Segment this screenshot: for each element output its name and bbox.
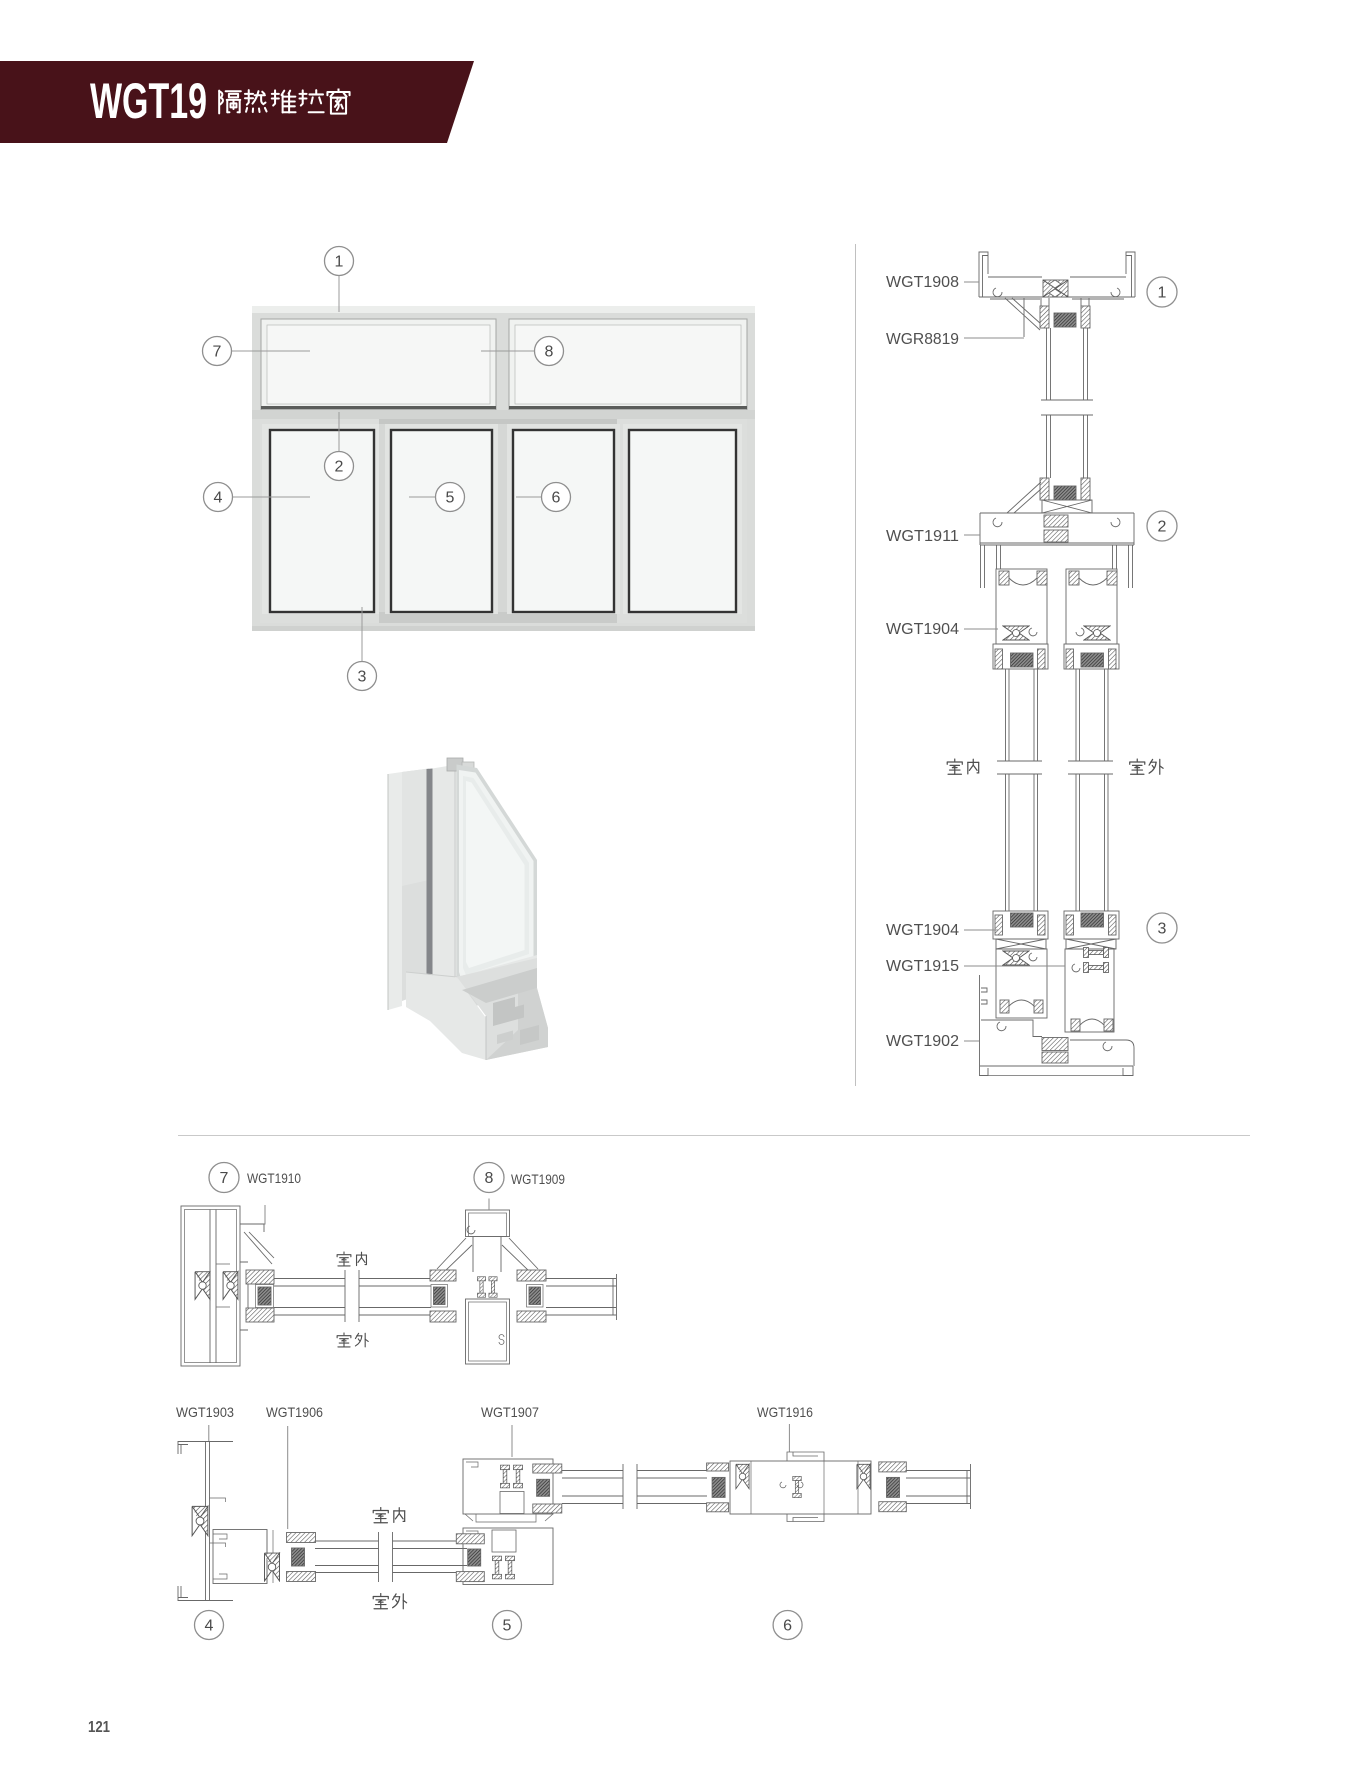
- svg-text:1: 1: [335, 254, 344, 271]
- svg-text:WGT1907: WGT1907: [481, 1404, 539, 1420]
- svg-text:WGT1908: WGT1908: [886, 274, 959, 291]
- svg-text:8: 8: [545, 344, 554, 361]
- svg-text:WGT1906: WGT1906: [266, 1404, 323, 1420]
- svg-text:WGT19: WGT19: [90, 73, 207, 129]
- svg-text:WGT1910: WGT1910: [247, 1170, 301, 1186]
- svg-text:WGT1909: WGT1909: [511, 1171, 565, 1187]
- svg-text:8: 8: [485, 1170, 494, 1187]
- svg-text:5: 5: [503, 1618, 512, 1635]
- svg-text:7: 7: [220, 1170, 229, 1187]
- svg-text:5: 5: [446, 490, 455, 507]
- svg-text:2: 2: [335, 459, 344, 476]
- svg-text:3: 3: [358, 669, 367, 686]
- svg-text:121: 121: [88, 1719, 110, 1736]
- svg-text:WGT1911: WGT1911: [886, 528, 959, 545]
- svg-text:2: 2: [1158, 519, 1167, 536]
- svg-text:7: 7: [213, 344, 222, 361]
- svg-text:4: 4: [214, 490, 223, 507]
- svg-text:WGR8819: WGR8819: [886, 331, 959, 348]
- svg-text:WGT1904: WGT1904: [886, 922, 959, 939]
- svg-text:6: 6: [783, 1618, 792, 1635]
- svg-text:1: 1: [1158, 285, 1167, 302]
- svg-text:6: 6: [552, 490, 561, 507]
- svg-text:WGT1903: WGT1903: [176, 1404, 234, 1420]
- svg-text:WGT1902: WGT1902: [886, 1033, 959, 1050]
- svg-text:WGT1916: WGT1916: [757, 1404, 813, 1420]
- svg-text:4: 4: [205, 1618, 214, 1635]
- svg-text:WGT1915: WGT1915: [886, 958, 959, 975]
- svg-text:WGT1904: WGT1904: [886, 621, 959, 638]
- svg-text:3: 3: [1158, 921, 1167, 938]
